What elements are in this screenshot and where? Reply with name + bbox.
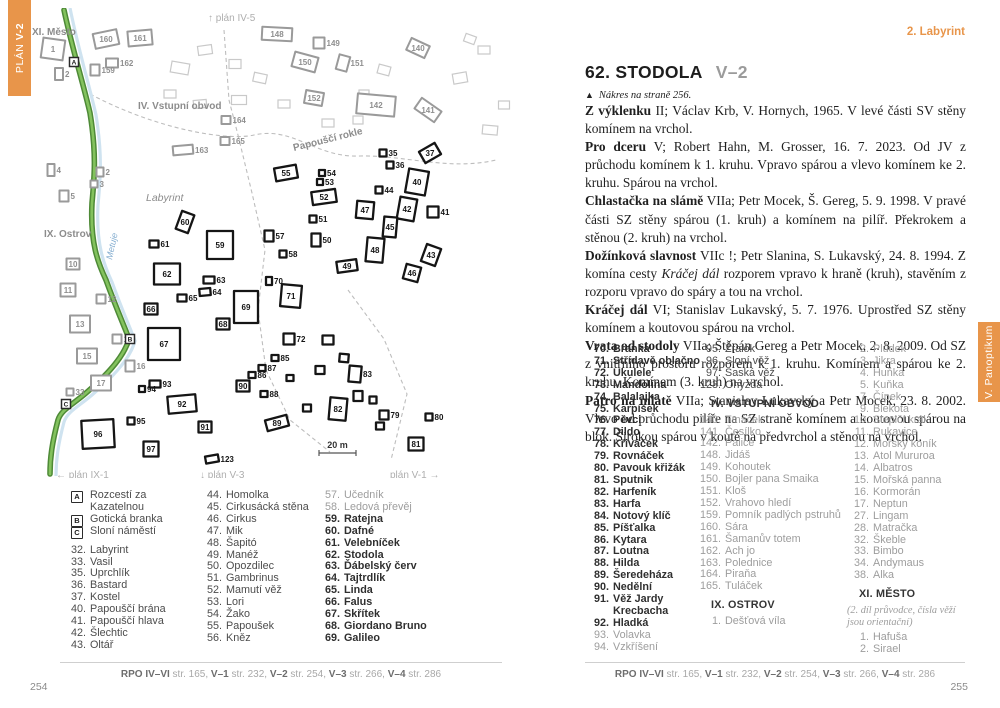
list-item: 64.Tajtrdlík xyxy=(316,573,488,585)
list-item-label: Věž Jardy Krecbacha xyxy=(613,593,668,617)
building-number: 88 xyxy=(270,390,279,399)
map-label: Metuje xyxy=(104,232,119,261)
building-number: 68 xyxy=(219,320,228,329)
route-description: Kráčej dál VI; Stanislav Lukavský, 5. 7.… xyxy=(585,301,966,337)
list-item-label: Sloní věž xyxy=(725,355,769,367)
building-number: 67 xyxy=(160,340,169,349)
list-item: 68.Giordano Bruno xyxy=(316,621,488,633)
building-number: 15 xyxy=(83,352,92,361)
list-item-number: 61. xyxy=(316,538,340,550)
list-item-label: Loutna xyxy=(613,545,649,557)
list-item-label: Velebníček xyxy=(344,537,400,549)
page-title: 62. STODOLAV–2 xyxy=(585,62,748,83)
list-item: 85.Píšťalka xyxy=(585,523,715,535)
rock-tower-outline xyxy=(339,354,349,363)
list-item-label: Tajtrdlík xyxy=(344,572,385,584)
list-item: 28.Matračka xyxy=(845,523,969,535)
list-item-label: Oltář xyxy=(90,639,113,651)
rock-tower-outline xyxy=(199,288,211,296)
list-item-label: Andymaus xyxy=(873,557,924,569)
building-number: 71 xyxy=(287,292,296,301)
rock-tower-outline xyxy=(150,241,159,248)
list-item-label: Stodola xyxy=(344,549,384,561)
list-item-number: 94. xyxy=(585,642,609,654)
building-outline xyxy=(253,72,268,84)
list-item: 32.Labyrint xyxy=(62,545,194,557)
boundary-dashed-line xyxy=(238,135,266,370)
list-item: 47.Mik xyxy=(198,526,326,538)
list-item-number: 48. xyxy=(198,538,222,550)
list-item-number: 5. xyxy=(845,380,869,392)
list-item-label: Bojler pana Smaika xyxy=(725,473,819,485)
list-item-label: Manéž xyxy=(226,549,258,561)
route-description: Chlastačka na slámě VIIa; Petr Mocek, Š.… xyxy=(585,192,966,246)
building-number: 42 xyxy=(403,205,412,214)
building-number: 164 xyxy=(233,116,247,125)
building-number: 51 xyxy=(319,215,328,224)
building-outline xyxy=(314,38,325,49)
list-item-label: Papouščí hlava xyxy=(90,615,164,627)
list-item-label: Kostel xyxy=(90,591,120,603)
building-number: 52 xyxy=(320,193,329,202)
list-item-number: 83. xyxy=(585,499,609,511)
list-item-label: Dafné xyxy=(344,525,374,537)
list-item-number: 84. xyxy=(585,511,609,523)
rock-tower-outline xyxy=(249,372,256,378)
list-item-number: 56. xyxy=(198,633,222,645)
list-item: 58.Ledová převěj xyxy=(316,502,488,514)
building-number: 79 xyxy=(391,411,400,420)
list-item-label: Česílko xyxy=(725,426,761,438)
map-label: ← plán IX-1 xyxy=(56,470,109,478)
list-item-label: Mamutí věž xyxy=(226,584,282,596)
list-item-label: Žralok xyxy=(725,343,755,355)
building-number: 80 xyxy=(435,413,444,422)
list-item-label: Opozdilec xyxy=(226,560,274,572)
rock-tower-outline xyxy=(380,150,387,157)
building-outline xyxy=(67,389,74,396)
building-number: 37 xyxy=(426,149,435,158)
rock-tower-outline xyxy=(284,334,295,345)
building-number: 17 xyxy=(97,379,106,388)
list-item-label: Pěvci xyxy=(613,414,641,426)
list-item-label: Sirael xyxy=(873,643,901,655)
rock-tower-outline xyxy=(303,405,311,412)
building-number: 123 xyxy=(221,455,235,464)
building-number: 92 xyxy=(178,400,187,409)
list-item-label: Uprchlík xyxy=(90,567,130,579)
list-section-note: (2. díl průvodce, čísla věží jsou orient… xyxy=(845,605,969,629)
list-item-label: Kytara xyxy=(613,534,647,546)
list-item-label: Kněz xyxy=(226,632,251,644)
building-outline xyxy=(278,100,290,108)
list-item-label: Huňka xyxy=(873,367,904,379)
svg-text:C: C xyxy=(64,401,69,408)
rock-tower-outline xyxy=(387,162,394,169)
building-number: 49 xyxy=(343,262,352,271)
map-label: Labyrint xyxy=(146,192,184,204)
map-label: IX. Ostrov xyxy=(44,229,92,240)
list-item-label: Galileo xyxy=(344,632,380,644)
list-item-number: 16. xyxy=(845,487,869,499)
list-item-label: Vzkříšení xyxy=(613,641,658,653)
list-item-label: Rukavice xyxy=(873,426,917,438)
list-item-label: Lingam xyxy=(873,510,908,522)
building-number: 57 xyxy=(276,232,285,241)
list-item-number: 60. xyxy=(316,526,340,538)
route-name: Z výklenku xyxy=(585,103,651,118)
footer-rule-right xyxy=(585,662,965,663)
building-outline xyxy=(482,125,498,135)
list-item-label: Učedník xyxy=(344,489,384,501)
building-number: 16 xyxy=(137,362,146,371)
rock-tower-outline xyxy=(272,355,279,361)
list-item-label: Saská věž xyxy=(725,367,775,379)
rock-tower-outline xyxy=(280,251,287,258)
building-number: 13 xyxy=(76,320,85,329)
list-item-label: Alka xyxy=(873,569,894,581)
building-outline xyxy=(55,68,63,80)
list-item-label: Harfeník xyxy=(613,486,656,498)
list-item-number: 161. xyxy=(697,534,721,546)
building-outline xyxy=(229,60,241,69)
rock-tower-outline xyxy=(265,231,274,242)
list-item-label: Jidáš xyxy=(725,449,750,461)
rock-tower-outline xyxy=(428,207,439,218)
list-item-label: Polednice xyxy=(725,557,772,569)
list-item: 159.Pomník padlých pstruhů xyxy=(697,510,843,522)
building-number: 59 xyxy=(216,241,225,250)
map-marker-key: C xyxy=(71,527,83,539)
building-outline xyxy=(91,181,98,188)
map-marker-B: B xyxy=(126,335,135,344)
left-legend-column-1: ARozcestí za KazatelnouBGotická brankaCS… xyxy=(62,490,194,652)
list-item-label: Balalajka xyxy=(613,391,660,403)
list-item-label: Šamanův totem xyxy=(725,533,801,545)
list-item-label: Lori xyxy=(226,596,244,608)
rock-tower-outline xyxy=(287,375,294,381)
list-item-label: Kormorán xyxy=(873,486,920,498)
rock-tower-outline xyxy=(426,414,433,421)
building-number: 61 xyxy=(161,240,170,249)
rock-tower-outline xyxy=(139,386,145,392)
map-label: Papouščí rokle xyxy=(292,126,364,154)
list-item-label: Palice xyxy=(725,437,754,449)
rock-tower-outline xyxy=(316,366,325,374)
left-legend-column-2: 44.Homolka45.Cirkusácká stěna46.Cirkus47… xyxy=(198,490,326,645)
building-number: 141 xyxy=(421,106,435,115)
plan-tab-label: PLÁN V-2 xyxy=(14,23,26,73)
list-item-label: Čípek xyxy=(873,391,901,403)
list-item-label: Harfa xyxy=(613,498,641,510)
list-item-label: Plůdek xyxy=(873,343,906,355)
building-number: 95 xyxy=(137,417,146,426)
rock-tower-outline xyxy=(312,234,321,247)
list-item-number: 162. xyxy=(697,546,721,558)
list-section-header: XI. MĚSTO xyxy=(845,588,969,600)
left-legend-column-3: 57.Učedník58.Ledová převěj59.Ratejna60.D… xyxy=(316,490,488,645)
list-item-label: Hladká xyxy=(613,617,648,629)
building-number: 151 xyxy=(351,59,365,68)
list-item-label: Mandolína xyxy=(613,379,666,391)
list-item-label: Jikra xyxy=(873,355,896,367)
building-outline xyxy=(336,54,351,71)
building-outline xyxy=(48,164,55,176)
tower-title: 62. STODOLA xyxy=(585,62,703,82)
building-number: 72 xyxy=(297,335,306,344)
list-item-number: 43. xyxy=(62,640,86,652)
rock-tower-outline xyxy=(370,397,377,404)
list-item-number: 59. xyxy=(316,514,340,526)
list-item-label: Mořský koník xyxy=(873,438,937,450)
list-item-label: Sputnik xyxy=(613,474,653,486)
list-item-number: 1. xyxy=(697,616,721,628)
rock-tower-outline xyxy=(348,366,361,383)
map-marker-C: C xyxy=(62,400,71,409)
rock-tower-outline xyxy=(323,336,334,345)
building-number: 40 xyxy=(413,178,422,187)
list-item-number: 85. xyxy=(585,523,609,535)
building-number: 10 xyxy=(69,260,78,269)
building-number: 91 xyxy=(201,423,210,432)
climbing-area-map: 1216016116215914814915015115214214114016… xyxy=(28,8,528,478)
route-name: Dožínková slavnost xyxy=(585,248,696,263)
list-item-number: 92. xyxy=(585,618,609,630)
list-item-label: Labyrint xyxy=(90,544,128,556)
building-number: 45 xyxy=(386,223,395,232)
building-outline xyxy=(463,33,476,44)
page-number-right: 255 xyxy=(950,681,968,693)
route-name: Pro dceru xyxy=(585,139,646,154)
list-item: 56.Kněz xyxy=(198,633,326,645)
list-item-label: Gambrinus xyxy=(226,572,279,584)
building-number: 165 xyxy=(232,137,246,146)
building-outline xyxy=(353,116,363,124)
list-item-label: Kloš xyxy=(725,485,746,497)
list-item-number: 123. xyxy=(697,380,721,392)
building-number: 69 xyxy=(242,303,251,312)
building-number: 65 xyxy=(189,294,198,303)
list-item-label: Vrahovo hledí xyxy=(725,497,791,509)
building-number: 89 xyxy=(273,419,282,428)
right-legend-column-2: 95.Žralok96.Sloní věž97.Saská věž123.Ohy… xyxy=(697,344,843,628)
building-number: 90 xyxy=(239,382,248,391)
list-item-label: Bastard xyxy=(90,579,127,591)
building-number: 83 xyxy=(363,370,372,379)
building-number: 162 xyxy=(120,59,134,68)
building-outline xyxy=(170,61,190,75)
list-item: 46.Cirkus xyxy=(198,514,326,526)
building-number: 94 xyxy=(147,385,156,394)
footer-cross-references-right: RPO IV–VI str. 165, V–1 str. 232, V–2 st… xyxy=(585,669,965,680)
list-item-number: 72. xyxy=(585,368,609,380)
building-number: 55 xyxy=(282,169,291,178)
building-number: 41 xyxy=(441,208,450,217)
plan-code: V–2 xyxy=(716,62,748,82)
list-item: ARozcestí za Kazatelnou xyxy=(62,490,194,514)
list-item-label: Střídavě oblačno xyxy=(613,355,700,367)
building-number: 58 xyxy=(289,250,298,259)
list-item-number: 28. xyxy=(845,523,869,535)
list-item-number: 140. xyxy=(697,415,721,427)
list-item: 48.Šapitó xyxy=(198,538,326,550)
building-number: 53 xyxy=(325,178,334,187)
list-item: 69.Galileo xyxy=(316,633,488,645)
list-item: 123.Ohyzda xyxy=(697,380,843,392)
list-item-label: Ledová převěj xyxy=(344,501,412,513)
list-item-number: 32. xyxy=(62,545,86,557)
list-item-label: Ukulele xyxy=(613,367,651,379)
route-description: Pro dceru V; Robert Hahn, M. Grosser, 16… xyxy=(585,138,966,192)
building-number: 150 xyxy=(298,58,312,67)
list-item: 60.Dafné xyxy=(316,526,488,538)
guidebook-spread: PLÁN V-2 1216016116215914814915015115214… xyxy=(0,0,1000,708)
building-number: 43 xyxy=(427,251,436,260)
list-section-header: IV. VSTUPNÍ OBVOD xyxy=(697,398,843,410)
list-item: 91.Věž Jardy Krecbacha xyxy=(585,594,715,618)
building-number: 163 xyxy=(195,146,209,155)
list-item: 94.Vzkříšení xyxy=(585,642,715,654)
list-item: 161.Šamanův totem xyxy=(697,534,843,546)
list-item-number: 97. xyxy=(697,368,721,380)
sketch-note: ▲Nákres na straně 256. xyxy=(585,89,691,101)
list-item-number: 2. xyxy=(845,644,869,656)
list-item-label: Albatros xyxy=(873,462,913,474)
building-number: 159 xyxy=(102,66,116,75)
list-item-label: Matračka xyxy=(873,522,917,534)
list-item-label: Píšťalka xyxy=(613,522,655,534)
list-item: 97.Saská věž xyxy=(697,368,843,380)
rock-tower-outline xyxy=(178,295,187,302)
map-label: ↓ plán V-3 xyxy=(200,470,245,478)
list-item-label: Šapitó xyxy=(226,537,257,549)
list-item-label: Karpíšek xyxy=(613,403,659,415)
rock-tower-outline xyxy=(380,411,389,420)
building-outline xyxy=(113,335,122,344)
list-item: CSloní náměstí xyxy=(62,526,194,538)
building-number: 87 xyxy=(268,364,277,373)
list-item-label: Kuňka xyxy=(873,379,904,391)
footer-rule-left xyxy=(60,662,502,663)
list-item-label: Atol Mururoa xyxy=(873,450,935,462)
list-item-label: Nedělní xyxy=(613,581,652,593)
list-item-label: Ratejna xyxy=(344,513,383,525)
list-item-label: Slepičí král xyxy=(873,414,926,426)
rock-tower-outline xyxy=(376,187,383,194)
list-item-label: Kohoutek xyxy=(725,461,771,473)
list-item-label: Rozcestí za Kazatelnou xyxy=(90,489,146,513)
list-item-number: 4. xyxy=(845,368,869,380)
list-item: 61.Velebníček xyxy=(316,538,488,550)
rock-tower-outline xyxy=(205,454,219,463)
building-number: 64 xyxy=(213,288,222,297)
building-number: 50 xyxy=(323,236,332,245)
scale-label: 20 m xyxy=(327,440,348,450)
building-number: 1 xyxy=(51,45,56,54)
list-item-label: Ďábelský červ xyxy=(344,560,417,572)
list-item: 66.Falus xyxy=(316,597,488,609)
list-item: 82.Harfeník xyxy=(585,487,715,499)
list-item: 2.Sirael xyxy=(845,644,969,656)
building-outline xyxy=(499,101,510,109)
building-number: 2 xyxy=(65,70,70,79)
map-label: ↑ plán IV-5 xyxy=(208,13,256,24)
building-number: 85 xyxy=(281,354,290,363)
list-item-number: 91. xyxy=(585,594,609,606)
route-name: Chlastačka na slámě xyxy=(585,193,703,208)
list-item-label: Linda xyxy=(344,584,373,596)
list-item-label: Dildo xyxy=(613,426,640,438)
list-item-number: 165. xyxy=(697,581,721,593)
list-item-label: Šlechtic xyxy=(90,627,128,639)
list-item-label: Pavouk křižák xyxy=(613,462,685,474)
list-item-label: Homolka xyxy=(226,489,269,501)
rock-tower-outline xyxy=(376,423,384,430)
list-item-label: Šeredeháza xyxy=(613,569,673,581)
building-number: 60 xyxy=(181,218,190,227)
building-number: 44 xyxy=(385,186,394,195)
building-number: 96 xyxy=(94,430,103,439)
building-number: 3 xyxy=(100,180,105,189)
building-outline xyxy=(322,119,334,127)
list-item-number: 38. xyxy=(845,570,869,582)
building-number: 152 xyxy=(307,94,321,103)
building-outline xyxy=(197,45,212,56)
svg-text:B: B xyxy=(128,336,133,343)
building-number: 2 xyxy=(106,168,111,177)
building-outline xyxy=(377,64,391,76)
rock-tower-outline xyxy=(128,418,135,425)
rock-tower-outline xyxy=(261,391,268,397)
rock-tower-outline xyxy=(310,216,317,223)
list-item-number: 159. xyxy=(697,510,721,522)
list-item-label: Rovnáček xyxy=(613,450,664,462)
list-item-number: 93. xyxy=(585,630,609,642)
list-item-label: Sloní náměstí xyxy=(90,525,156,537)
map-label: plán V-1 → xyxy=(390,470,439,478)
building-number: 160 xyxy=(99,35,113,44)
list-section-header: IX. OSTROV xyxy=(697,599,843,611)
list-item: 59.Ratejna xyxy=(316,514,488,526)
list-item: 5.Kuňka xyxy=(845,380,969,392)
chapter-tab: V. Panoptikum xyxy=(978,322,1000,402)
list-item-label: Cirkusácká stěna xyxy=(226,501,309,513)
list-item: 65.Linda xyxy=(316,585,488,597)
building-outline xyxy=(164,90,176,98)
building-outline xyxy=(97,168,104,177)
building-outline xyxy=(97,295,106,304)
list-item-label: Bimbo xyxy=(873,545,904,557)
list-item-label: Dešťová víla xyxy=(725,615,785,627)
building-number: 5 xyxy=(71,192,76,201)
building-outline xyxy=(173,145,194,156)
list-item-label: Branka xyxy=(613,343,650,355)
building-number: 54 xyxy=(327,169,336,178)
building-number: 148 xyxy=(270,30,284,39)
list-item-label: Gotická branka xyxy=(90,513,163,525)
building-number: 63 xyxy=(217,276,226,285)
sketch-note-text: Nákres na straně 256. xyxy=(599,90,691,101)
rock-tower-outline xyxy=(204,277,215,284)
right-legend-column-1: 70.Branka71.Střídavě oblačno72.Ukulele73… xyxy=(585,344,715,654)
list-item-number: 27. xyxy=(845,511,869,523)
list-item-label: Žako xyxy=(226,608,250,620)
building-outline xyxy=(91,65,100,76)
map-marker-key: A xyxy=(71,491,83,503)
list-item-number: 74. xyxy=(585,392,609,404)
boundary-dashed-line xyxy=(266,370,330,452)
building-number: 82 xyxy=(334,405,343,414)
